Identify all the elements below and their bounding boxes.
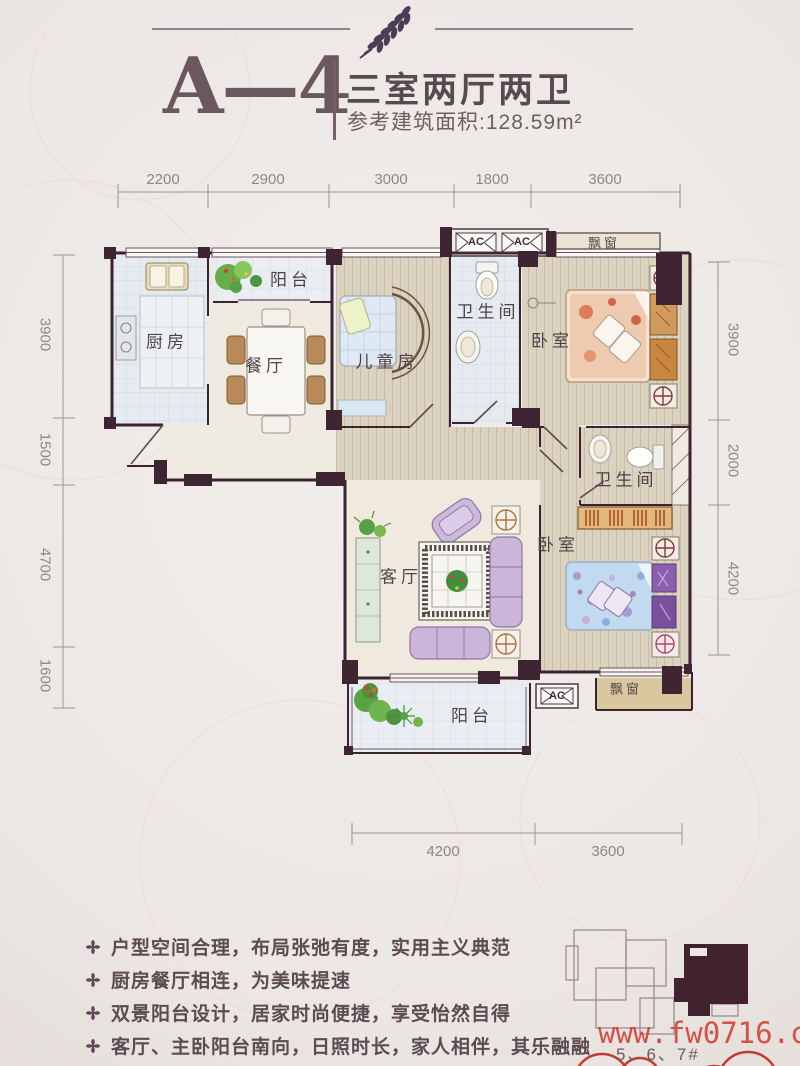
room-label-balcony-top: 阳台 [270, 266, 312, 291]
dim-left-1: 3900 [37, 300, 54, 370]
feature-list: 户型空间合理，布局张弛有度，实用主义典范 厨房餐厅相连，为美味提速 双景阳台设计… [86, 930, 591, 1062]
room-label-bath1: 卫生间 [457, 298, 520, 323]
header-rule-right [435, 28, 633, 30]
title-divider [333, 60, 336, 140]
dim-left-2: 1500 [37, 415, 54, 485]
ac-label-3: AC [549, 690, 565, 702]
dim-right-3: 4200 [725, 544, 742, 614]
duct-shaft [672, 425, 690, 505]
floorplan-page: A—4 三室两厅两卫 参考建筑面积:128.59m² 2200 2900 300… [0, 0, 800, 1066]
feature-text: 户型空间合理，布局张弛有度，实用主义典范 [111, 933, 511, 960]
bay-window-bottom-label: 飘窗 [610, 679, 642, 698]
dim-left-3: 4700 [37, 530, 54, 600]
flower-bullet-icon [86, 1039, 100, 1053]
dim-top-2: 2900 [233, 171, 303, 188]
dim-right-1: 3900 [725, 305, 742, 375]
header-rule-left [152, 28, 350, 30]
room-label-kids: 儿童房 [356, 348, 419, 373]
floorplan-drawing [0, 0, 800, 1066]
room-label-kitchen: 厨房 [146, 328, 188, 353]
feature-item: 双景阳台设计，居家时尚便捷，享受怡然自得 [86, 996, 591, 1029]
feature-text: 厨房餐厅相连，为美味提速 [111, 966, 351, 993]
dim-top-1: 2200 [128, 171, 198, 188]
feature-text: 客厅、主卧阳台南向，日照时长，家人相伴，其乐融融 [111, 1032, 591, 1059]
dim-bottom-2: 3600 [573, 843, 643, 860]
ac-label-1: AC [468, 236, 484, 248]
room-label-living: 客厅 [380, 563, 422, 588]
dim-top-5: 3600 [570, 171, 640, 188]
wheat-icon [356, 2, 420, 62]
dim-top-4: 1800 [457, 171, 527, 188]
building-area: 参考建筑面积:128.59m² [347, 106, 583, 136]
flower-bullet-icon [86, 1006, 100, 1020]
feature-text: 双景阳台设计，居家时尚便捷，享受怡然自得 [111, 999, 511, 1026]
dim-top-3: 3000 [356, 171, 426, 188]
dim-right-2: 2000 [725, 426, 742, 496]
bay-window-top-label: 飘窗 [588, 233, 620, 252]
room-label-balcony-bottom: 阳台 [451, 702, 493, 727]
room-label-bedroom1: 卧室 [531, 327, 573, 352]
flower-bullet-icon [86, 940, 100, 954]
room-label-bath2: 卫生间 [595, 466, 658, 491]
room-label-bedroom2: 卧室 [537, 531, 579, 556]
dim-left-4: 1600 [37, 641, 54, 711]
site-plan-label: 5、6、7# [616, 1040, 700, 1065]
feature-item: 厨房餐厅相连，为美味提速 [86, 963, 591, 996]
room-label-dining: 餐厅 [245, 352, 287, 377]
feature-item: 户型空间合理，布局张弛有度，实用主义典范 [86, 930, 591, 963]
flower-bullet-icon [86, 973, 100, 987]
feature-item: 客厅、主卧阳台南向，日照时长，家人相伴，其乐融融 [86, 1029, 591, 1062]
ac-label-2: AC [514, 236, 530, 248]
unit-name: A—4 [163, 48, 350, 126]
dim-bottom-1: 4200 [408, 843, 478, 860]
